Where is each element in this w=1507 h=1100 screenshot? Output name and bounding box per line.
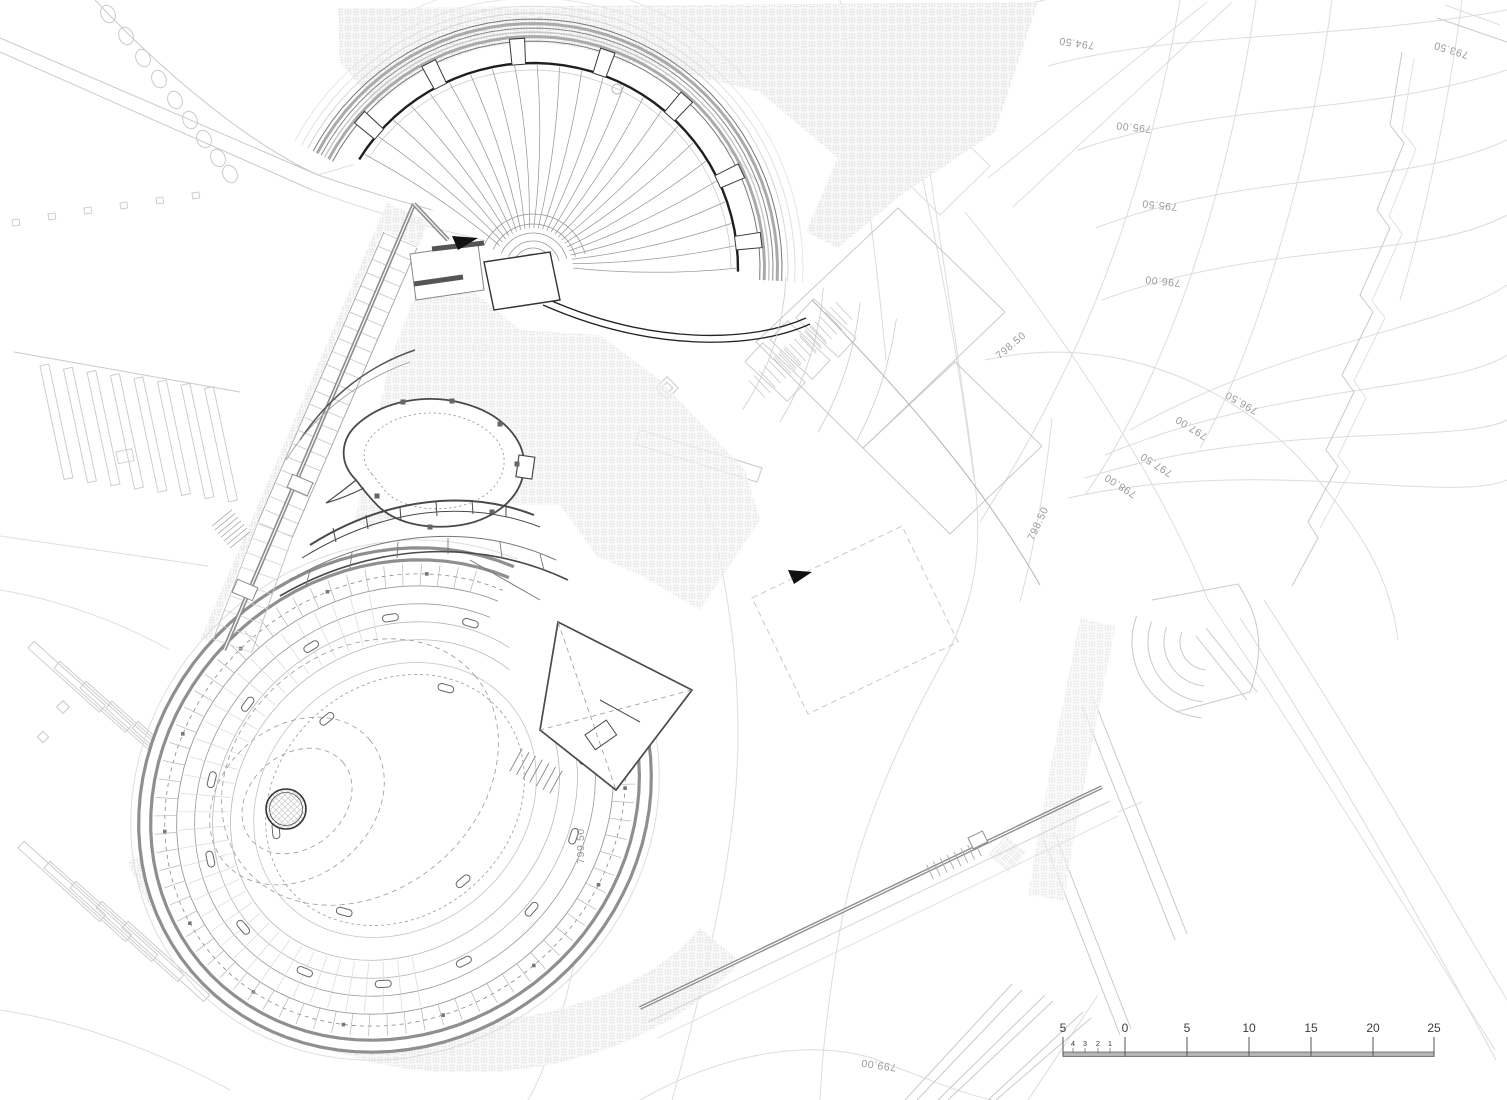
contour-label: 799.50 (575, 828, 587, 864)
contour-label: 795.50 (1141, 197, 1178, 213)
site-plan-sheet: 794.50 793.50 795.00 795.50 796.00 796.5… (0, 0, 1507, 1100)
scale-label: 15 (1304, 1021, 1318, 1035)
contour-label: 799.00 (860, 1057, 897, 1074)
scale-minor-label: 2 (1096, 1039, 1100, 1048)
scale-minor-label: 3 (1083, 1039, 1087, 1048)
site-plan-drawing: 794.50 793.50 795.00 795.50 796.00 796.5… (0, 0, 1507, 1100)
scale-label: 0 (1122, 1021, 1129, 1035)
contour-label: 798.50 (1025, 505, 1051, 542)
contour-label: 794.50 (1058, 35, 1095, 52)
scale-label: 20 (1366, 1021, 1380, 1035)
contour-label: 796.00 (1144, 273, 1181, 289)
contour-label: 798.00 (1102, 471, 1139, 500)
stage-box (484, 252, 560, 310)
contour-label: 798.50 (994, 330, 1029, 362)
contour-label: 797.00 (1173, 413, 1210, 442)
scale-minor-label: 4 (1071, 1039, 1075, 1048)
contour-label: 796.50 (1223, 388, 1260, 416)
scale-label: 10 (1242, 1021, 1256, 1035)
bridge-structure (410, 244, 484, 300)
contour-label: 797.50 (1138, 450, 1175, 479)
scale-label: 5 (1184, 1021, 1191, 1035)
contour-label: 795.00 (1115, 119, 1152, 135)
scale-label: 25 (1427, 1021, 1441, 1035)
scale-minor-label: 1 (1108, 1039, 1112, 1048)
scale-label: 5 (1060, 1021, 1067, 1035)
center-circle-feature (266, 789, 306, 829)
contour-label: 793.50 (1432, 39, 1470, 61)
direction-arrow-icon (788, 570, 812, 584)
